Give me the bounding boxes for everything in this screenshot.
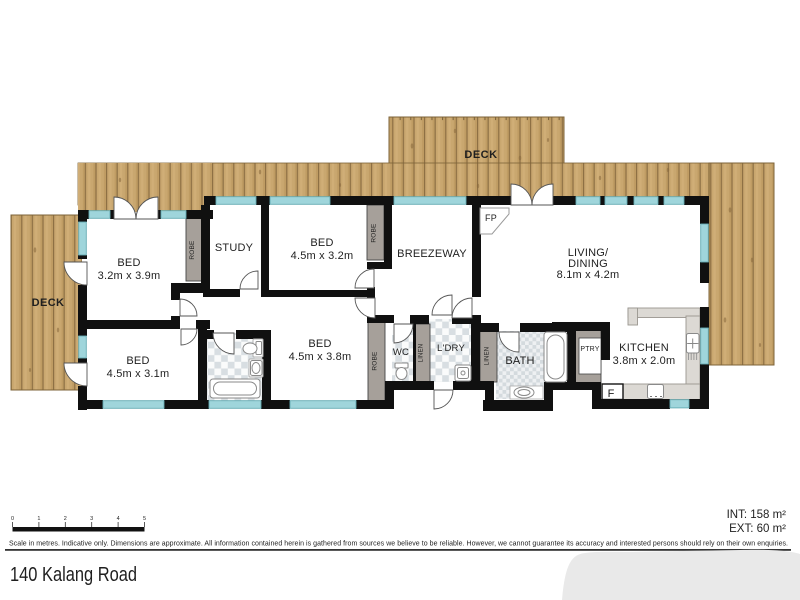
svg-text:3.8m x 2.0m: 3.8m x 2.0m <box>613 355 676 367</box>
svg-text:BED: BED <box>126 355 149 367</box>
svg-text:ROBE: ROBE <box>372 351 379 371</box>
svg-text:0: 0 <box>11 516 14 522</box>
svg-text:4.5m x 3.1m: 4.5m x 3.1m <box>107 368 170 380</box>
svg-text:BED: BED <box>308 338 331 350</box>
svg-text:INT: 158 m²: INT: 158 m² <box>727 509 787 521</box>
svg-text:WC: WC <box>393 347 409 358</box>
svg-text:F: F <box>608 388 615 400</box>
svg-text:8.1m x 4.2m: 8.1m x 4.2m <box>557 269 620 281</box>
svg-text:3.2m x 3.9m: 3.2m x 3.9m <box>98 270 161 282</box>
svg-text:LINEN: LINEN <box>419 344 425 363</box>
svg-text:LINEN: LINEN <box>485 347 491 366</box>
svg-text:BED: BED <box>310 237 333 249</box>
svg-text:FP: FP <box>485 213 497 223</box>
svg-text:4.5m x 3.2m: 4.5m x 3.2m <box>291 250 354 262</box>
svg-text:5: 5 <box>143 516 146 522</box>
svg-text:PTRY: PTRY <box>580 346 599 353</box>
svg-text:4: 4 <box>117 516 120 522</box>
svg-text:Scale in metres. Indicative on: Scale in metres. Indicative only. Dimens… <box>9 541 788 548</box>
svg-text:EXT: 60 m²: EXT: 60 m² <box>729 523 786 535</box>
svg-text:DECK: DECK <box>32 297 65 309</box>
svg-text:L'DRY: L'DRY <box>437 343 465 354</box>
svg-text:ROBE: ROBE <box>189 240 196 260</box>
svg-text:1: 1 <box>37 516 40 522</box>
svg-text:4.5m x 3.8m: 4.5m x 3.8m <box>289 351 352 363</box>
svg-text:BATH: BATH <box>505 355 534 367</box>
svg-text:2: 2 <box>64 516 67 522</box>
svg-text:KITCHEN: KITCHEN <box>619 342 669 354</box>
svg-text:ROBE: ROBE <box>371 223 378 243</box>
svg-text:3: 3 <box>90 516 93 522</box>
svg-text:DECK: DECK <box>464 149 497 161</box>
svg-text:BED: BED <box>117 257 140 269</box>
svg-text:BREEZEWAY: BREEZEWAY <box>397 248 467 260</box>
svg-text:STUDY: STUDY <box>215 242 254 254</box>
svg-text:140 Kalang Road: 140 Kalang Road <box>10 564 137 586</box>
